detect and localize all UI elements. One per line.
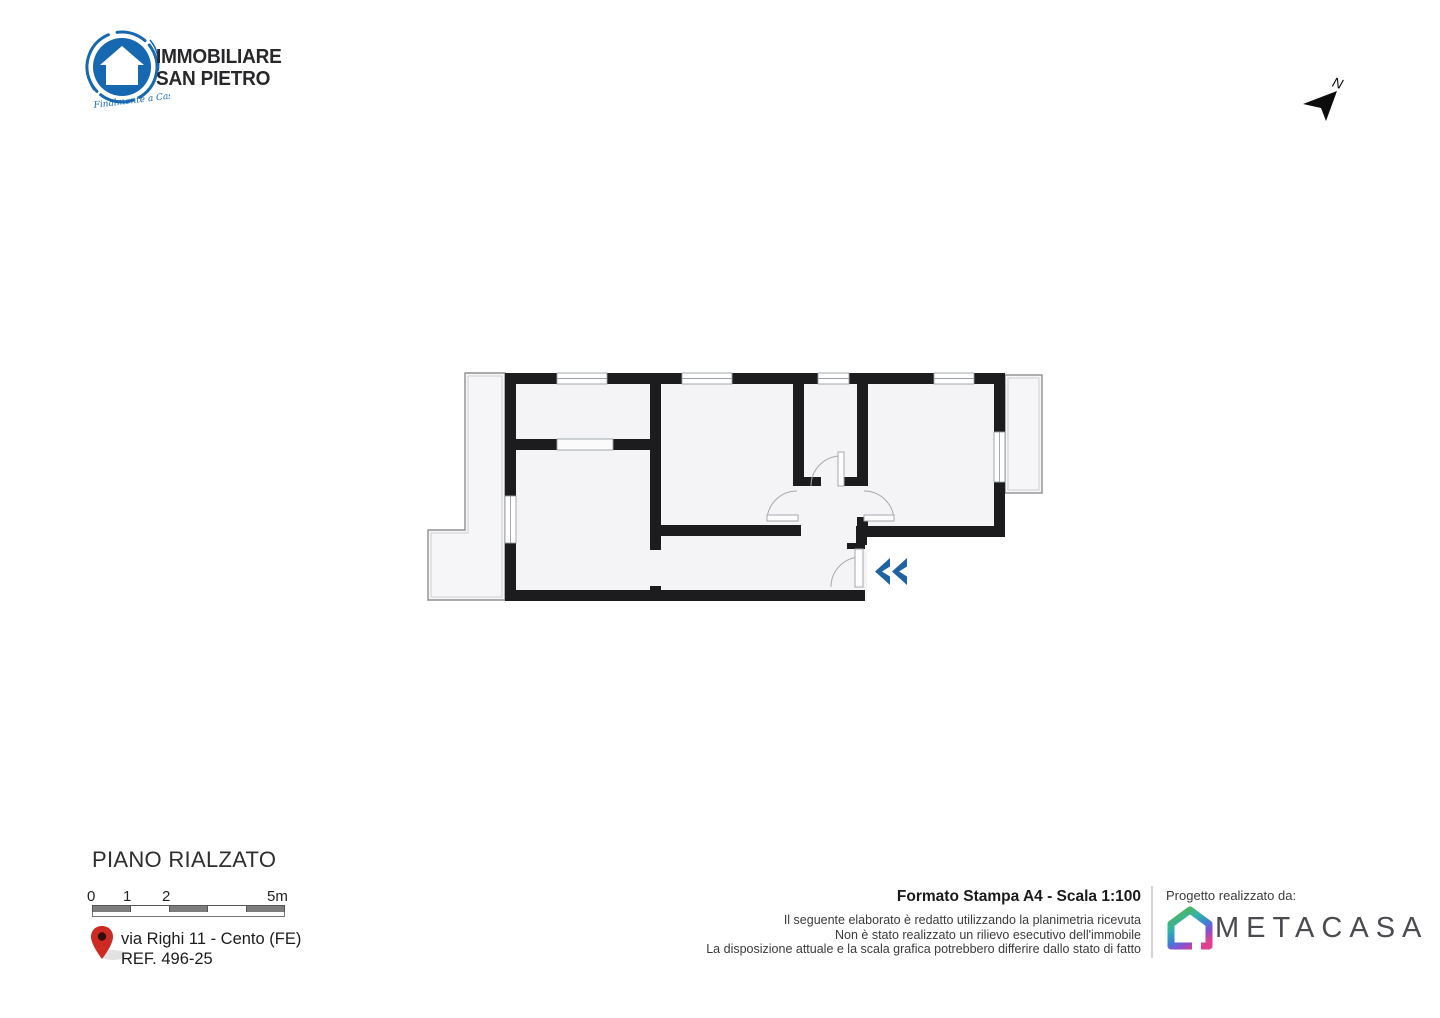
wall-c bbox=[650, 525, 801, 536]
wall-bottom bbox=[505, 590, 865, 601]
wall-bottom-right bbox=[865, 526, 1005, 537]
scale-label-2: 2 bbox=[162, 888, 170, 905]
print-format-title: Formato Stampa A4 - Scala 1:100 bbox=[661, 888, 1141, 906]
window bbox=[505, 496, 516, 543]
address-block: via Righi 11 - Cento (FE) REF. 496-25 bbox=[121, 929, 301, 969]
footer-divider bbox=[1151, 886, 1153, 958]
wall-mid-small bbox=[793, 383, 804, 483]
brand-line1: IMMOBILIARE bbox=[156, 47, 282, 69]
metacasa-door-notch bbox=[1192, 941, 1201, 951]
scale-label-1: 1 bbox=[123, 888, 131, 905]
scale-label-5m: 5m bbox=[267, 888, 288, 905]
window bbox=[818, 373, 849, 384]
disclaimer: Il seguente elaborato è redatto utilizza… bbox=[661, 913, 1141, 957]
window bbox=[557, 373, 607, 384]
address-line: via Righi 11 - Cento (FE) bbox=[121, 929, 301, 949]
balcony-right bbox=[1005, 375, 1042, 493]
disclaimer-line: La disposizione attuale e la scala grafi… bbox=[661, 942, 1141, 957]
ref-line: REF. 496-25 bbox=[121, 949, 301, 969]
metacasa-logo-icon bbox=[1166, 905, 1214, 953]
brand-line2: SAN PIETRO bbox=[156, 69, 282, 91]
wall-left bbox=[505, 373, 516, 601]
wall-a-stub bbox=[650, 586, 661, 594]
north-arrow-icon: N bbox=[1295, 66, 1365, 128]
window bbox=[994, 432, 1005, 482]
entrance-chevron-icon bbox=[875, 558, 907, 585]
credit-label: Progetto realizzato da: bbox=[1166, 888, 1296, 903]
apartment-floor bbox=[505, 373, 1005, 601]
scale-bar-sub bbox=[92, 912, 285, 917]
balcony-left bbox=[428, 373, 505, 600]
disclaimer-line: Non è stato realizzato un rilievo esecut… bbox=[661, 928, 1141, 943]
window bbox=[934, 373, 974, 384]
print-info: Formato Stampa A4 - Scala 1:100 Il segue… bbox=[661, 888, 1141, 957]
scale-label-0: 0 bbox=[87, 888, 95, 905]
wall-a bbox=[650, 383, 661, 550]
interior-opening bbox=[557, 439, 613, 450]
wall-entrance-stub bbox=[847, 543, 865, 549]
floor-plan bbox=[420, 360, 1060, 620]
page: { "brand": { "line1": "IMMOBILIARE", "li… bbox=[0, 0, 1440, 1018]
brand-name: IMMOBILIARE SAN PIETRO bbox=[156, 47, 282, 90]
north-label: N bbox=[1330, 74, 1345, 93]
wall-small-right bbox=[857, 383, 868, 483]
wall-small-stub-left bbox=[793, 477, 821, 486]
disclaimer-line: Il seguente elaborato è redatto utilizza… bbox=[661, 913, 1141, 928]
window bbox=[682, 373, 732, 384]
plan-title: PIANO RIALZATO bbox=[92, 847, 276, 873]
metacasa-wordmark: METACASA bbox=[1215, 912, 1428, 945]
